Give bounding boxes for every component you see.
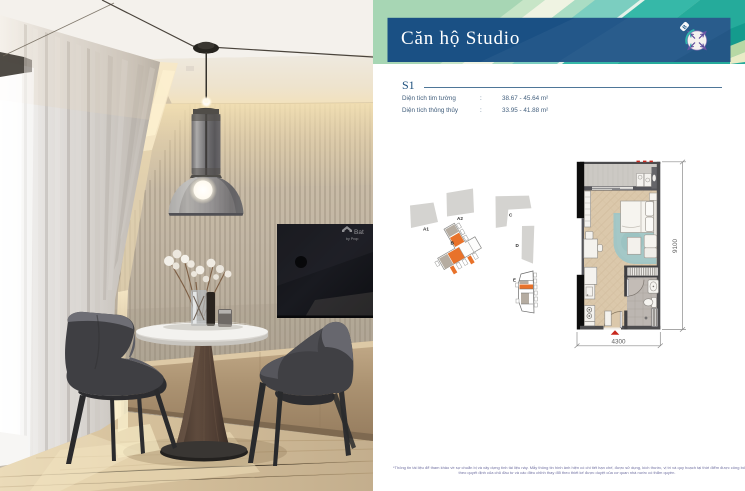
svg-text:4300: 4300 <box>611 339 626 346</box>
svg-text:A1: A1 <box>423 227 429 232</box>
svg-text:by Prop: by Prop <box>346 237 358 241</box>
svg-text:9100: 9100 <box>672 239 679 254</box>
svg-text:D: D <box>516 243 520 248</box>
svg-text:A2: A2 <box>457 216 463 221</box>
svg-text:C: C <box>509 213 513 218</box>
svg-text:E: E <box>513 278 516 283</box>
svg-text:B: B <box>451 241 455 247</box>
svg-text:Bat: Bat <box>354 229 364 236</box>
